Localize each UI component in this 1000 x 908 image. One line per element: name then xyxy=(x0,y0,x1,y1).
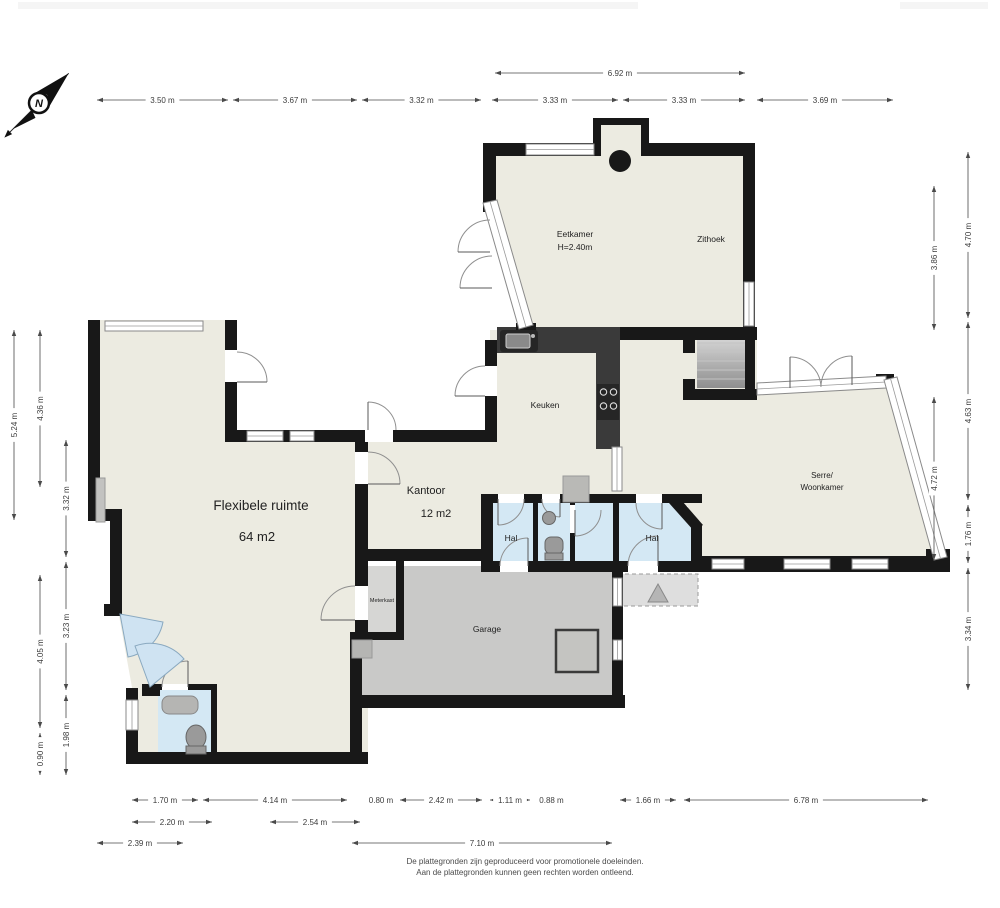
dimension-label: 2.20 m xyxy=(160,818,185,827)
floors xyxy=(88,125,937,760)
dimension-label: 3.32 m xyxy=(62,486,71,511)
dimension-line: 2.20 m xyxy=(132,817,212,827)
dimension-label: 3.23 m xyxy=(62,613,71,638)
dimension-label: 3.33 m xyxy=(543,96,568,105)
dimension-line: 3.86 m xyxy=(929,186,939,330)
compass: N xyxy=(0,66,76,144)
dimension-line: 3.33 m xyxy=(492,95,618,105)
dimension-label: 3.50 m xyxy=(150,96,175,105)
dimension-line: 2.54 m xyxy=(270,817,360,827)
dimension-line: 7.10 m xyxy=(352,838,612,848)
toilet-room-sink xyxy=(543,512,556,525)
dimension-label: 4.70 m xyxy=(964,222,973,247)
dimension-line: 3.32 m xyxy=(362,95,481,105)
entrance-porch xyxy=(618,574,698,606)
room-label-zithoek: Zithoek xyxy=(697,234,726,244)
shower-room-floor xyxy=(574,503,613,567)
room-label-flexibele-ruimte: Flexibele ruimte xyxy=(213,498,308,513)
dimension-label: 1.70 m xyxy=(153,796,178,805)
dimension-label: 3.32 m xyxy=(409,96,434,105)
room-label-serre-woonkamer: Serre/ xyxy=(811,471,834,480)
south-needle xyxy=(13,110,38,135)
footer-disclaimer: De plattegronden zijn geproduceerd voor … xyxy=(406,857,643,877)
dimension-line: 4.36 m xyxy=(35,330,45,487)
dimension-label: 0.90 m xyxy=(36,741,45,766)
dimension-line: 6.78 m xyxy=(684,795,928,805)
dimension-line: 4.70 m xyxy=(963,152,973,318)
dimension-label: 4.72 m xyxy=(930,466,939,491)
dimension-label: 0.80 m xyxy=(369,796,394,805)
room-label-eetkamer: H=2.40m xyxy=(558,242,593,252)
floor-plan-canvas: N EetkamerH=2.40mZithoekKeukenSerre/Woon… xyxy=(0,0,1000,908)
kitchen-sink xyxy=(500,330,538,352)
room-label-hal-left: Hal xyxy=(505,533,518,543)
dimension-label: 0.88 m xyxy=(539,796,564,805)
dimension-line: 1.11 m xyxy=(490,795,530,805)
radiator xyxy=(96,478,105,522)
dimension-label: 4.63 m xyxy=(964,398,973,423)
room-label-flexibele-ruimte-area: 64 m2 xyxy=(239,529,275,544)
dimension-line: 3.23 m xyxy=(61,562,71,690)
dimension-line: 4.05 m xyxy=(35,575,45,728)
dimension-line: 3.32 m xyxy=(61,440,71,557)
room-label-hal-right: Hal xyxy=(646,533,659,543)
room-label-keuken: Keuken xyxy=(531,400,560,410)
dimension-label: 1.98 m xyxy=(62,722,71,747)
dimension-label: 1.66 m xyxy=(636,796,661,805)
dimension-label: 1.76 m xyxy=(964,521,973,546)
dimension-line: 3.50 m xyxy=(97,95,228,105)
toilet xyxy=(545,537,563,560)
room-label-garage: Garage xyxy=(473,624,502,634)
stairs xyxy=(697,334,745,388)
dimension-line: 1.76 m xyxy=(963,505,973,563)
dimension-label: 5.24 m xyxy=(10,412,19,437)
dimension-line: 2.42 m xyxy=(400,795,482,805)
dimension-line: 6.92 m xyxy=(495,68,745,78)
dimension-label: 3.69 m xyxy=(813,96,838,105)
top-artifact xyxy=(18,2,988,9)
dimension-label: 2.39 m xyxy=(128,839,153,848)
room-label-eetkamer: Eetkamer xyxy=(557,229,594,239)
disclaimer-line-2: Aan de plattegronden kunnen geen rechten… xyxy=(416,868,634,877)
room-label-kantoor-area: 12 m2 xyxy=(421,508,452,520)
dimension-label: 4.14 m xyxy=(263,796,288,805)
dimension-line: 3.69 m xyxy=(757,95,893,105)
dimension-label: 2.54 m xyxy=(303,818,328,827)
garage-step-block xyxy=(352,640,372,658)
dimension-label: 3.34 m xyxy=(964,616,973,641)
dimension-line: 1.98 m xyxy=(61,695,71,775)
dimension-line: 3.67 m xyxy=(233,95,357,105)
room-label-serre-woonkamer: Woonkamer xyxy=(801,483,844,492)
dimension-line: 3.34 m xyxy=(963,568,973,690)
dimension-label: 4.36 m xyxy=(36,396,45,421)
dimension-label: 3.86 m xyxy=(930,245,939,270)
room-label-kantoor: Kantoor xyxy=(407,485,446,497)
dimension-label: 7.10 m xyxy=(470,839,495,848)
room-label-meterkast: Meterkast xyxy=(370,598,395,604)
dimension-label: 3.67 m xyxy=(283,96,308,105)
disclaimer-line-1: De plattegronden zijn geproduceerd voor … xyxy=(406,857,643,866)
garage-object xyxy=(556,630,598,672)
stove-flue xyxy=(609,150,631,172)
kitchen-cupboard xyxy=(563,476,589,502)
dimension-label: 4.05 m xyxy=(36,639,45,664)
dimension-line: 0.88 m xyxy=(535,795,569,805)
bathroom-sink xyxy=(162,696,198,714)
bathroom-toilet xyxy=(186,725,206,754)
dimension-line: 3.33 m xyxy=(623,95,745,105)
dimension-line: 4.63 m xyxy=(963,322,973,500)
dimension-label: 3.33 m xyxy=(672,96,697,105)
dimension-line: 1.66 m xyxy=(620,795,676,805)
dimension-label: 2.42 m xyxy=(429,796,454,805)
north-label: N xyxy=(35,98,44,110)
dimension-label: 6.78 m xyxy=(794,796,819,805)
floorplan-page: { "compass": { "label": "N" }, "footer":… xyxy=(0,0,1000,908)
dimension-line: 0.90 m xyxy=(35,733,45,775)
dimension-line: 1.70 m xyxy=(132,795,198,805)
dimension-label: 1.11 m xyxy=(498,796,522,805)
dimension-line: 2.39 m xyxy=(97,838,183,848)
dimension-line: 5.24 m xyxy=(9,330,19,520)
dimension-line: 4.14 m xyxy=(203,795,347,805)
dimension-label: 6.92 m xyxy=(608,69,633,78)
dimension-line: 0.80 m xyxy=(364,795,398,805)
stove xyxy=(597,384,619,420)
